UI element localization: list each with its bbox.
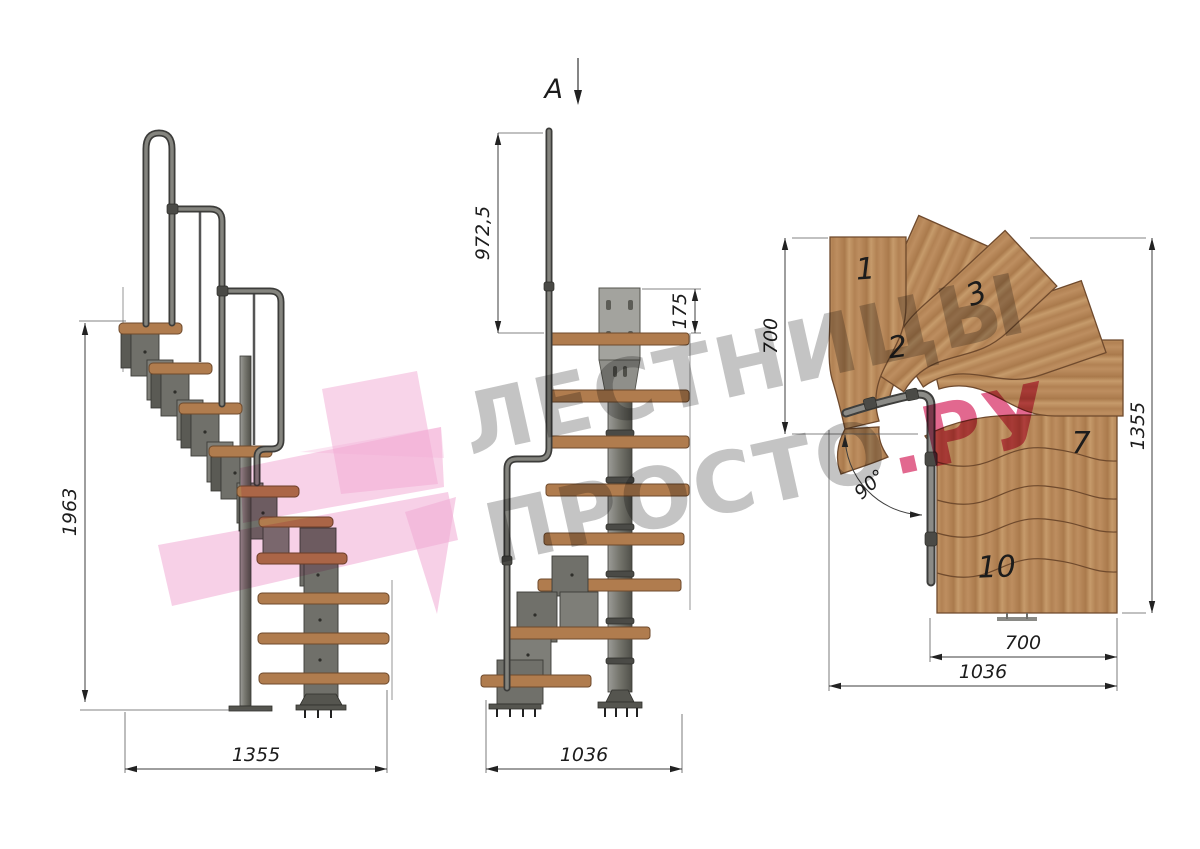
dim-plan-landing: 700 xyxy=(1005,632,1041,654)
dim-side-height: 1963 xyxy=(59,488,81,536)
section-marker: A xyxy=(543,58,582,105)
section-label: A xyxy=(543,74,563,105)
dim-plan-total: 1036 xyxy=(959,661,1007,683)
tread xyxy=(149,363,212,374)
dim-front-rail-height: 972,5 xyxy=(472,206,494,260)
section-arrow-icon xyxy=(574,90,582,105)
dim-front-width: 1036 xyxy=(560,744,608,766)
staircase-technical-drawing: A xyxy=(0,0,1200,849)
tread xyxy=(481,675,591,687)
tread xyxy=(258,593,389,604)
wall-plate xyxy=(997,613,1037,619)
tread xyxy=(258,633,389,644)
tread xyxy=(505,627,650,639)
dim-side-width: 1355 xyxy=(232,744,280,766)
tread xyxy=(259,673,389,684)
tread xyxy=(179,403,242,414)
tread-number-10: 10 xyxy=(977,549,1016,585)
handrail-loop-1 xyxy=(146,133,172,324)
